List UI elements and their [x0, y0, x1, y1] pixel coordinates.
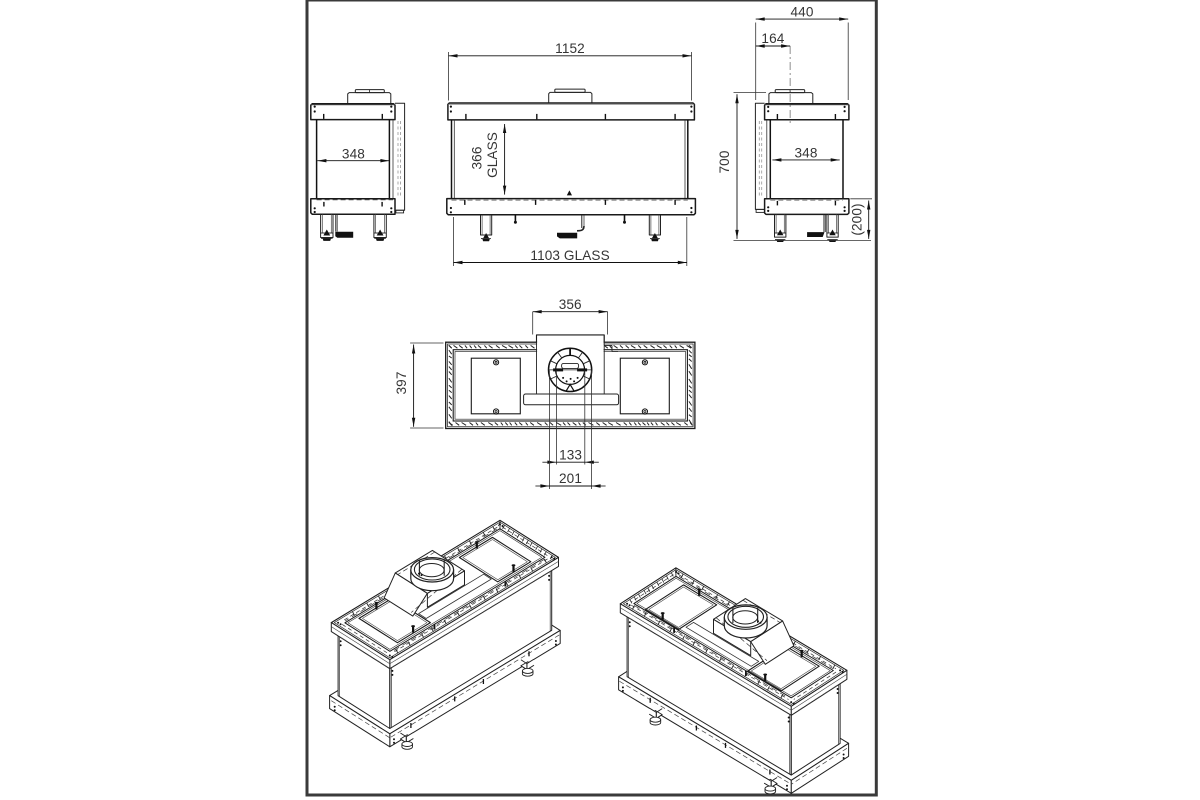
svg-text:397: 397 [394, 372, 409, 395]
svg-text:164: 164 [761, 31, 784, 46]
svg-text:(200): (200) [850, 203, 865, 235]
svg-text:366: 366 [470, 147, 485, 170]
svg-text:440: 440 [791, 4, 814, 19]
svg-text:348: 348 [342, 146, 365, 161]
svg-text:1103 GLASS: 1103 GLASS [530, 248, 609, 263]
svg-text:700: 700 [717, 150, 732, 173]
svg-text:356: 356 [559, 297, 582, 312]
svg-text:348: 348 [795, 146, 818, 161]
svg-text:GLASS: GLASS [485, 132, 500, 178]
svg-text:1152: 1152 [555, 41, 585, 56]
svg-text:133: 133 [559, 447, 582, 462]
svg-text:201: 201 [559, 471, 582, 486]
